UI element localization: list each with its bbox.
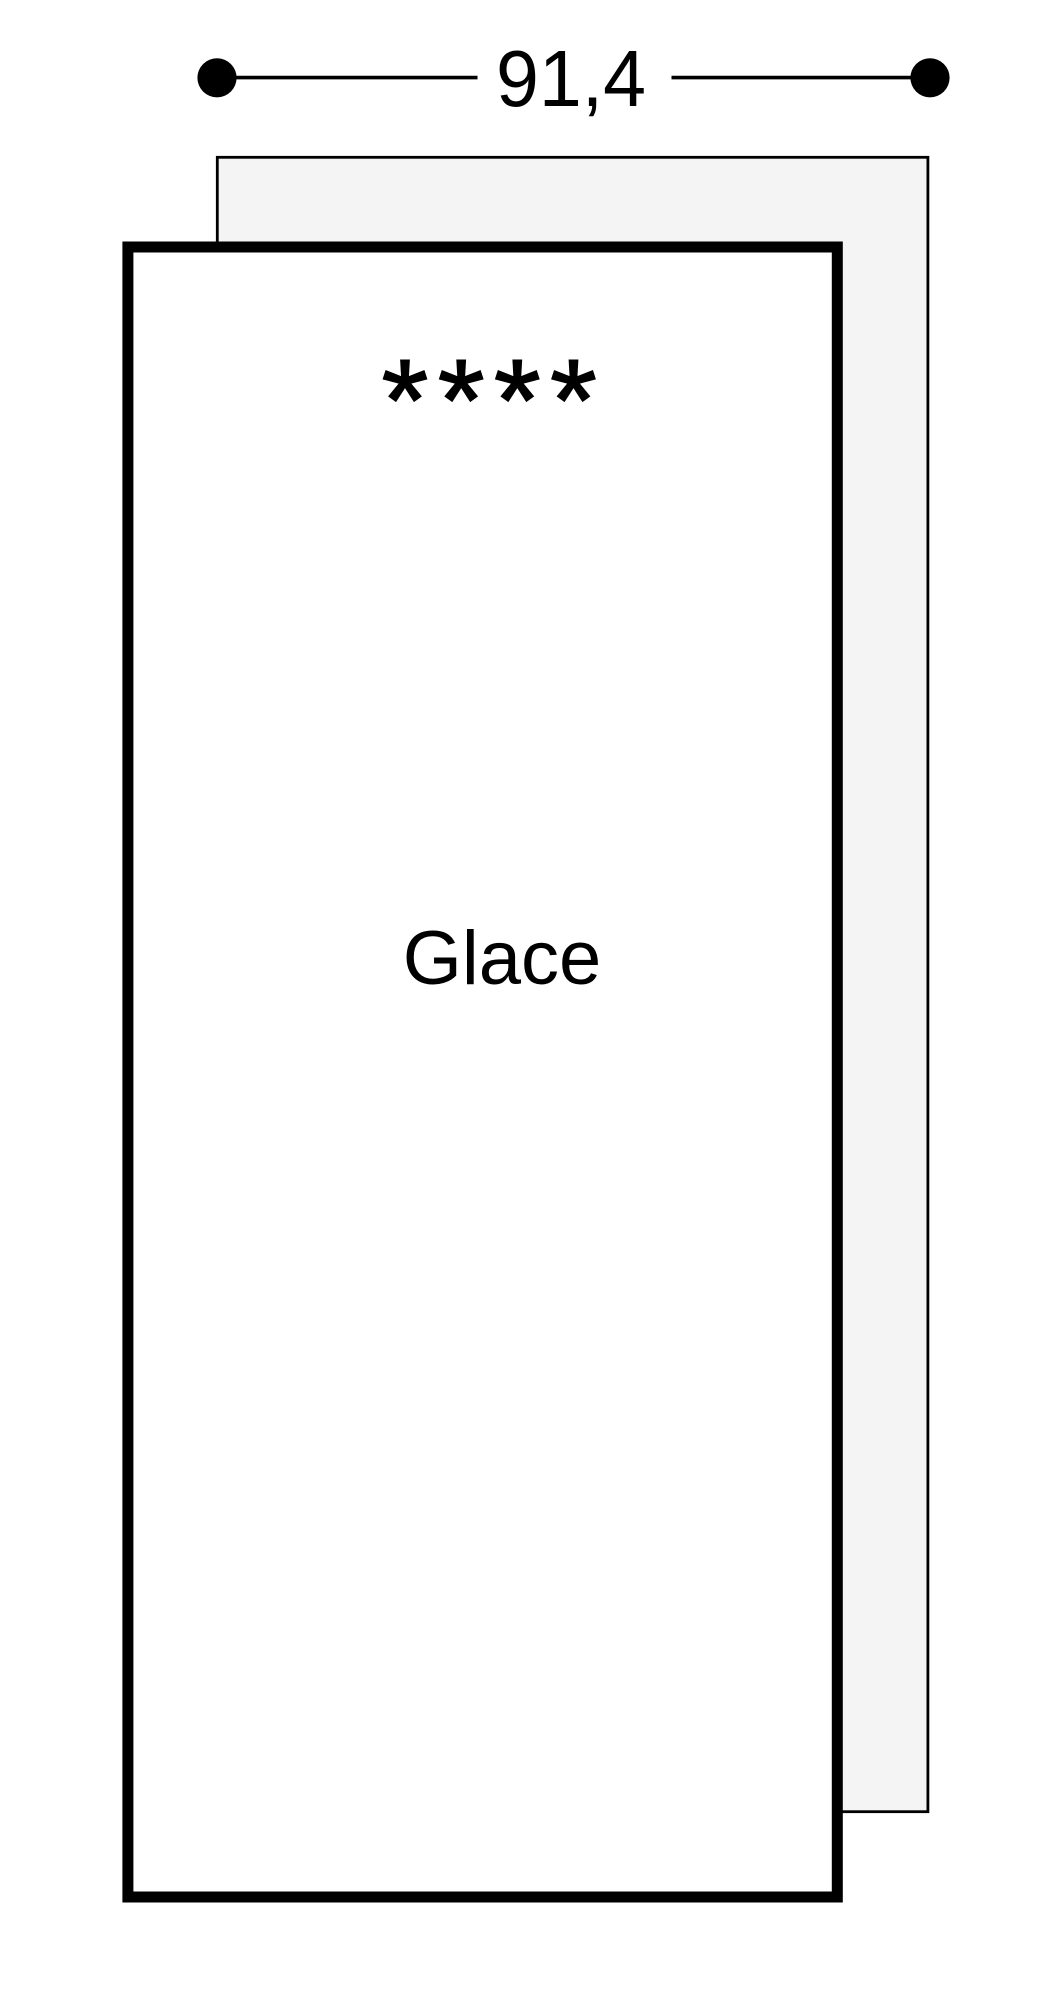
svg-text:Glace: Glace [403, 916, 602, 1001]
svg-text:91,4: 91,4 [496, 34, 646, 123]
